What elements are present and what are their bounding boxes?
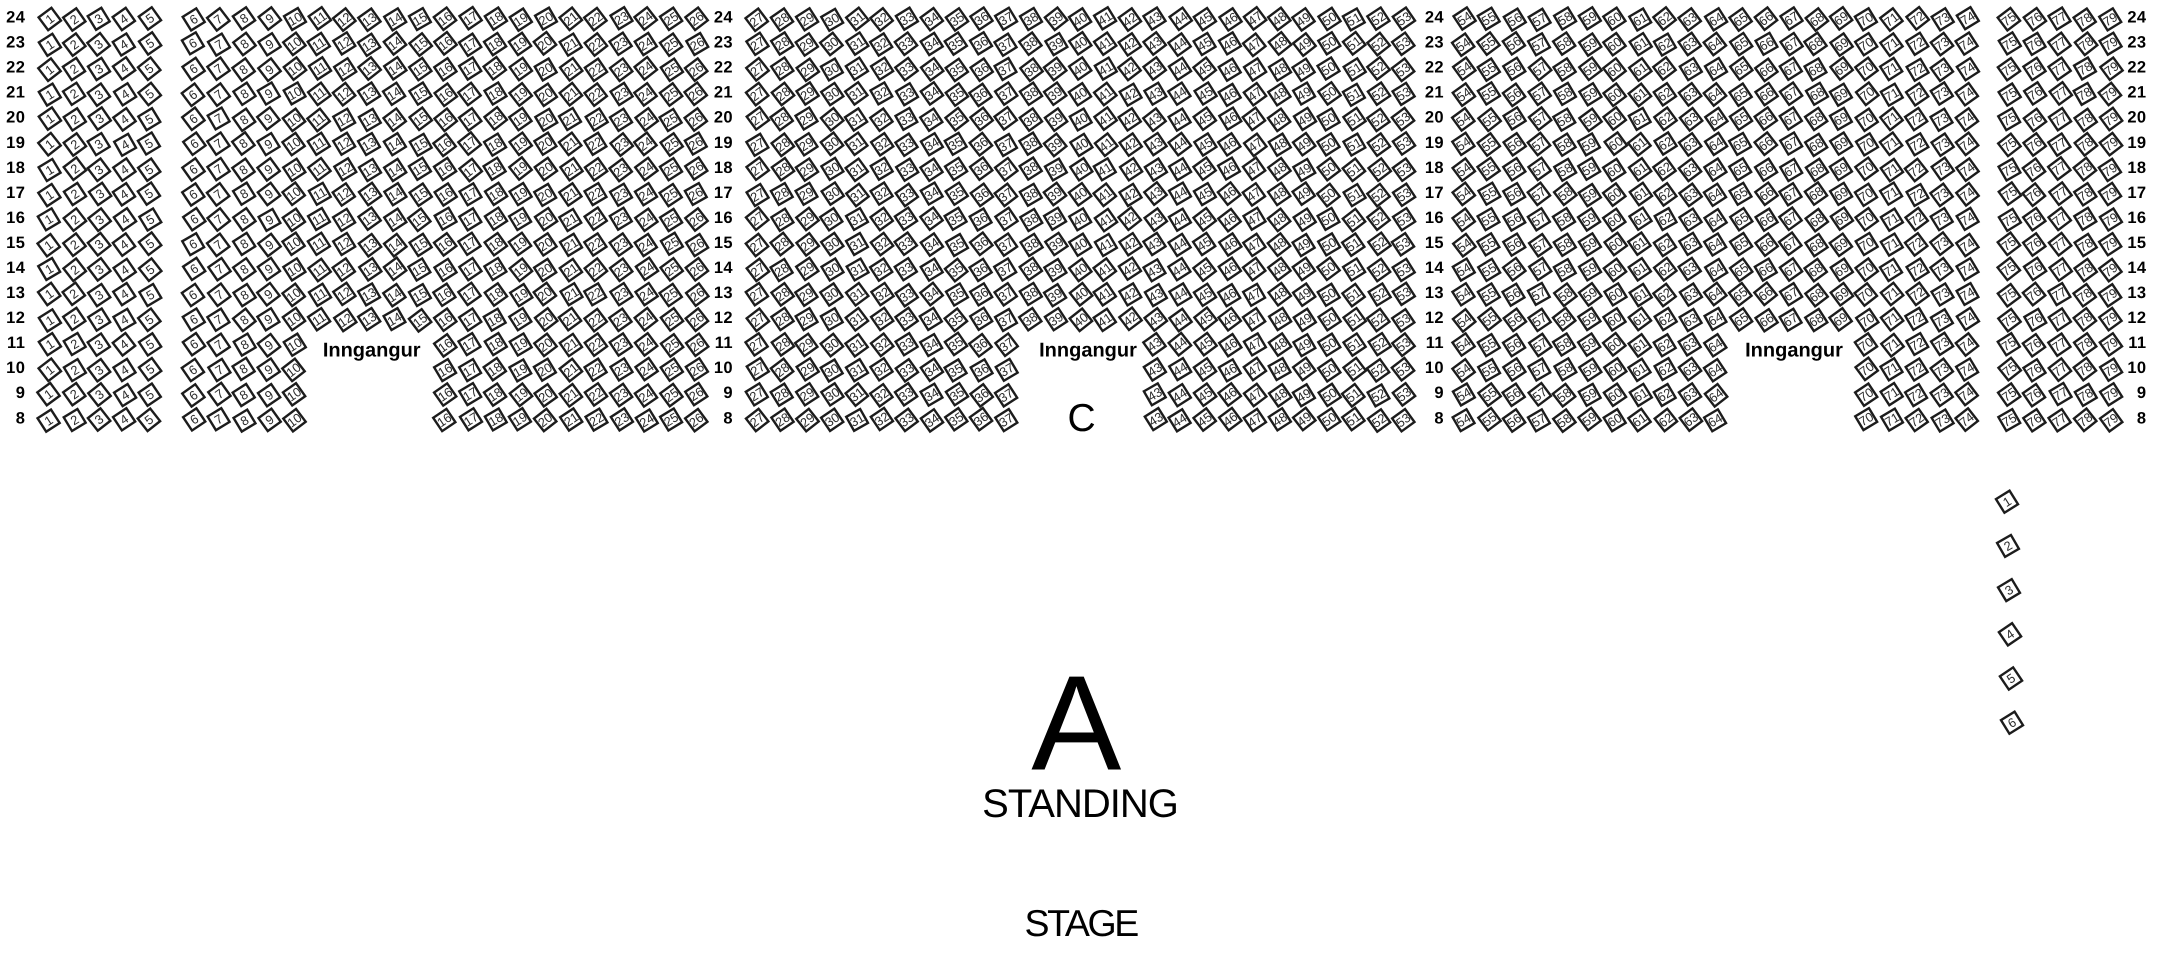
svg-text:11: 11 <box>1426 334 1444 352</box>
svg-text:19: 19 <box>2127 134 2146 152</box>
svg-text:Inngangur: Inngangur <box>323 340 421 362</box>
svg-text:24: 24 <box>2127 9 2147 27</box>
svg-text:21: 21 <box>6 84 25 102</box>
svg-text:10: 10 <box>6 359 25 377</box>
svg-text:8: 8 <box>2137 409 2147 427</box>
svg-text:9: 9 <box>723 384 733 402</box>
svg-text:18: 18 <box>2127 159 2146 177</box>
svg-text:13: 13 <box>2127 284 2146 302</box>
svg-text:20: 20 <box>2127 109 2146 127</box>
svg-text:17: 17 <box>2127 184 2146 202</box>
svg-text:11: 11 <box>2128 334 2146 352</box>
svg-text:Inngangur: Inngangur <box>1745 340 1843 362</box>
svg-text:15: 15 <box>2127 234 2146 252</box>
svg-text:17: 17 <box>714 184 733 202</box>
svg-text:20: 20 <box>6 109 25 127</box>
svg-text:19: 19 <box>6 134 25 152</box>
svg-text:19: 19 <box>714 134 733 152</box>
svg-text:23: 23 <box>1425 34 1444 52</box>
svg-text:8: 8 <box>16 409 26 427</box>
svg-text:11: 11 <box>7 334 25 352</box>
svg-text:20: 20 <box>1425 109 1444 127</box>
svg-text:8: 8 <box>1434 409 1444 427</box>
svg-text:12: 12 <box>2127 309 2146 327</box>
svg-text:23: 23 <box>2127 34 2146 52</box>
svg-text:23: 23 <box>6 34 25 52</box>
svg-text:STAGE: STAGE <box>1025 902 1139 944</box>
svg-text:21: 21 <box>1425 84 1444 102</box>
svg-text:13: 13 <box>714 284 733 302</box>
svg-text:10: 10 <box>2127 359 2146 377</box>
svg-text:15: 15 <box>1425 234 1444 252</box>
svg-text:16: 16 <box>2127 209 2146 227</box>
svg-text:22: 22 <box>1425 59 1444 77</box>
svg-text:17: 17 <box>1425 184 1444 202</box>
svg-text:24: 24 <box>714 9 734 27</box>
svg-text:9: 9 <box>2137 384 2147 402</box>
svg-text:14: 14 <box>714 259 734 277</box>
svg-text:12: 12 <box>714 309 733 327</box>
svg-text:15: 15 <box>6 234 25 252</box>
svg-text:24: 24 <box>1425 9 1445 27</box>
svg-text:9: 9 <box>16 384 26 402</box>
svg-text:21: 21 <box>2127 84 2146 102</box>
svg-text:22: 22 <box>2127 59 2146 77</box>
svg-text:18: 18 <box>1425 159 1444 177</box>
svg-text:15: 15 <box>714 234 733 252</box>
svg-text:19: 19 <box>1425 134 1444 152</box>
svg-text:8: 8 <box>723 409 733 427</box>
svg-text:24: 24 <box>6 9 26 27</box>
svg-text:STANDING: STANDING <box>982 782 1178 826</box>
svg-text:23: 23 <box>714 34 733 52</box>
svg-text:Inngangur: Inngangur <box>1039 340 1137 362</box>
svg-text:12: 12 <box>1425 309 1444 327</box>
svg-text:22: 22 <box>714 59 733 77</box>
svg-text:13: 13 <box>6 284 25 302</box>
svg-text:14: 14 <box>2127 259 2147 277</box>
svg-text:9: 9 <box>1434 384 1444 402</box>
svg-text:11: 11 <box>715 334 733 352</box>
svg-text:14: 14 <box>1425 259 1445 277</box>
svg-text:21: 21 <box>714 84 733 102</box>
svg-text:16: 16 <box>714 209 733 227</box>
svg-text:18: 18 <box>714 159 733 177</box>
svg-text:18: 18 <box>6 159 25 177</box>
svg-text:10: 10 <box>1425 359 1444 377</box>
svg-text:14: 14 <box>6 259 26 277</box>
svg-text:13: 13 <box>1425 284 1444 302</box>
svg-text:20: 20 <box>714 109 733 127</box>
svg-text:16: 16 <box>6 209 25 227</box>
svg-text:C: C <box>1068 397 1096 440</box>
svg-text:22: 22 <box>6 59 25 77</box>
svg-text:A: A <box>1031 648 1121 799</box>
svg-text:12: 12 <box>6 309 25 327</box>
svg-text:17: 17 <box>6 184 25 202</box>
svg-text:16: 16 <box>1425 209 1444 227</box>
svg-text:10: 10 <box>714 359 733 377</box>
